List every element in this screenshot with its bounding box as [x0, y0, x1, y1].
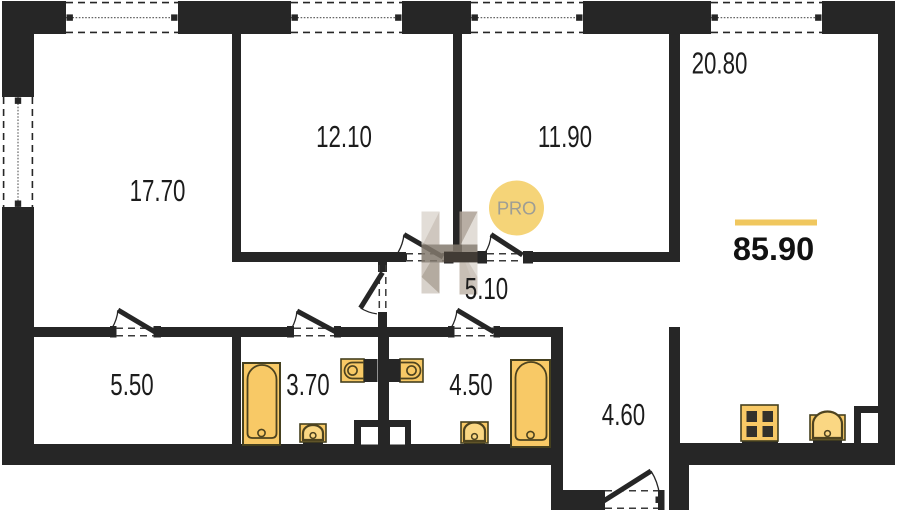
svg-text:5.10: 5.10 [465, 271, 508, 305]
svg-text:20.80: 20.80 [692, 46, 748, 80]
svg-text:17.70: 17.70 [130, 173, 186, 207]
svg-text:11.90: 11.90 [538, 119, 592, 153]
svg-text:4.60: 4.60 [602, 397, 645, 431]
svg-text:PRO: PRO [497, 198, 536, 219]
svg-text:85.90: 85.90 [733, 231, 814, 267]
svg-text:3.70: 3.70 [286, 367, 329, 401]
svg-text:5.50: 5.50 [110, 367, 153, 401]
svg-text:12.10: 12.10 [316, 119, 372, 153]
svg-text:4.50: 4.50 [449, 367, 492, 401]
